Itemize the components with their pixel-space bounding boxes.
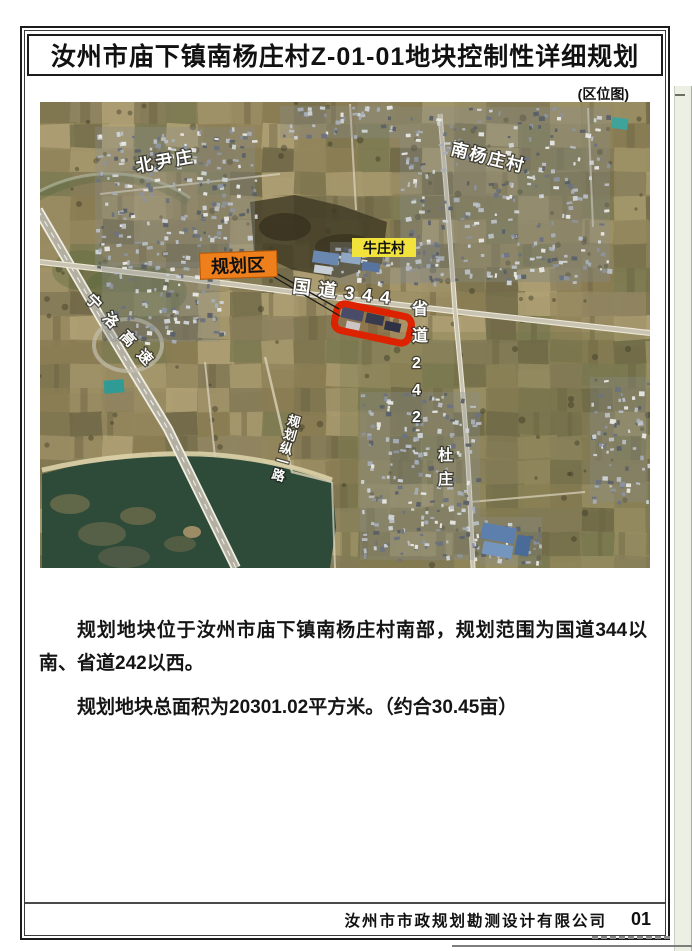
pond [104,379,125,394]
paragraph-location: 规划地块位于汝州市庙下镇南杨庄村南部，规划范围为国道344以南、省道242以西。 [39,614,647,680]
satellite-map: 规划区 牛庄村 北尹庄 南杨庄村 国道344 省道242 宁洛高速 规划纵一路 [40,102,650,568]
pond [611,117,628,130]
footer-page-number: 01 [631,909,651,930]
plan-document-page: 汝州市庙下镇南杨庄村Z-01-01地块控制性详细规划 (区位图) [0,0,692,951]
scan-artifact-tick [675,94,685,96]
niuzhuang-label-text: 牛庄村 [363,240,405,256]
footer: 汝州市市政规划勘测设计有限公司 01 [25,902,665,935]
location-map: 规划区 牛庄村 北尹庄 南杨庄村 国道344 省道242 宁洛高速 规划纵一路 [40,102,650,568]
village-strip-east [590,377,650,505]
planning-area-label-text: 规划区 [211,254,266,277]
page-border: 汝州市庙下镇南杨庄村Z-01-01地块控制性详细规划 (区位图) [20,26,670,940]
content-frame: 汝州市庙下镇南杨庄村Z-01-01地块控制性详细规划 (区位图) [24,30,666,936]
page-title: 汝州市庙下镇南杨庄村Z-01-01地块控制性详细规划 [51,37,640,73]
islet [183,526,201,538]
scan-artifact-line [452,945,692,947]
village-cluster [280,105,400,139]
scan-artifact-dashes [592,936,670,939]
title-box: 汝州市庙下镇南杨庄村Z-01-01地块控制性详细规划 [27,34,663,76]
paragraph-area: 规划地块总面积为20301.02平方米。（约合30.45亩） [39,691,647,724]
map-caption: (区位图) [578,84,629,104]
description-text: 规划地块位于汝州市庙下镇南杨庄村南部，规划范围为国道344以南、省道242以西。… [39,614,647,724]
village-beiyinzhuang [95,127,259,271]
footer-company: 汝州市市政规划勘测设计有限公司 [344,909,607,931]
niuzhuang-label: 牛庄村 [352,238,416,257]
adjacent-page-edge [674,86,692,951]
planning-area-label: 规划区 [200,251,278,280]
